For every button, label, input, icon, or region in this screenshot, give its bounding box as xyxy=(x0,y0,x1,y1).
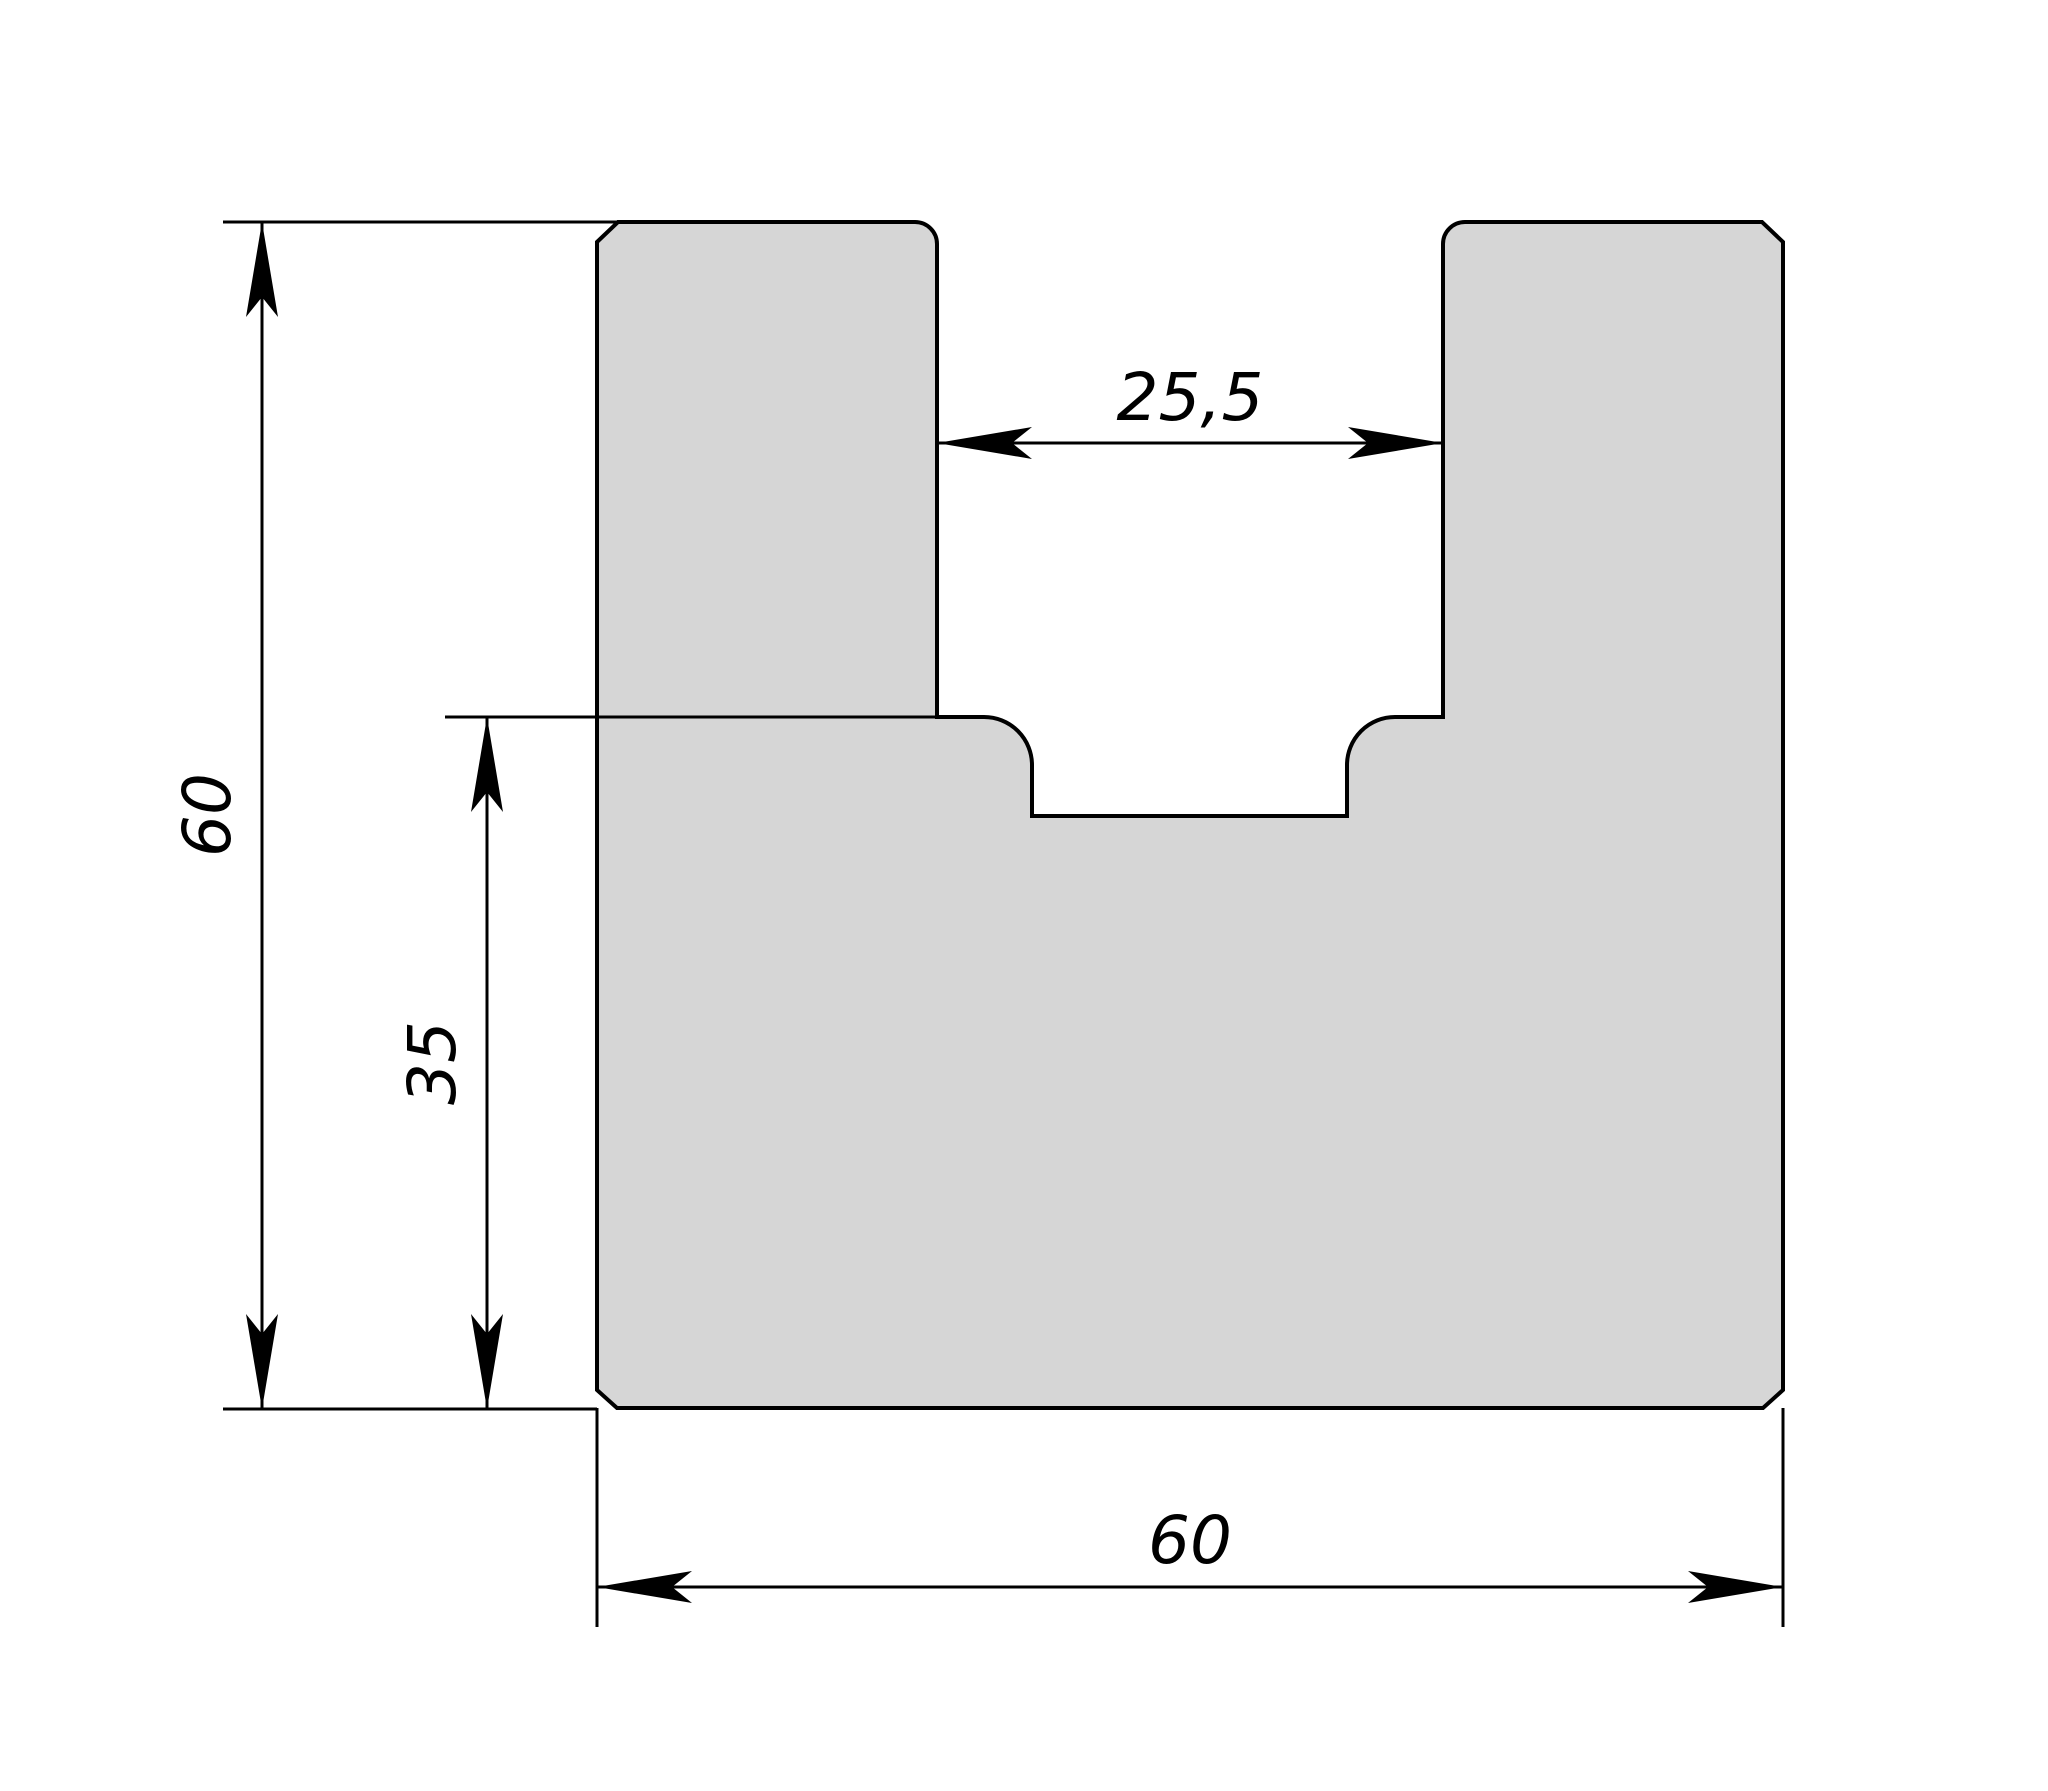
dimension-label-step-height: 35 xyxy=(394,1021,471,1105)
dimension-overall-height: 60 xyxy=(169,222,278,1409)
dimension-label-slot-width: 25,5 xyxy=(1117,359,1264,436)
drawing-canvas: 60 35 25,5 60 xyxy=(0,0,2048,1791)
technical-drawing: 60 35 25,5 60 xyxy=(0,0,2048,1791)
dimension-label-overall-width: 60 xyxy=(1148,1502,1232,1579)
dimension-slot-width: 25,5 xyxy=(937,359,1443,459)
dimension-step-height: 35 xyxy=(394,717,503,1409)
dimension-overall-width: 60 xyxy=(597,1502,1783,1603)
dimension-label-overall-height: 60 xyxy=(169,773,246,857)
